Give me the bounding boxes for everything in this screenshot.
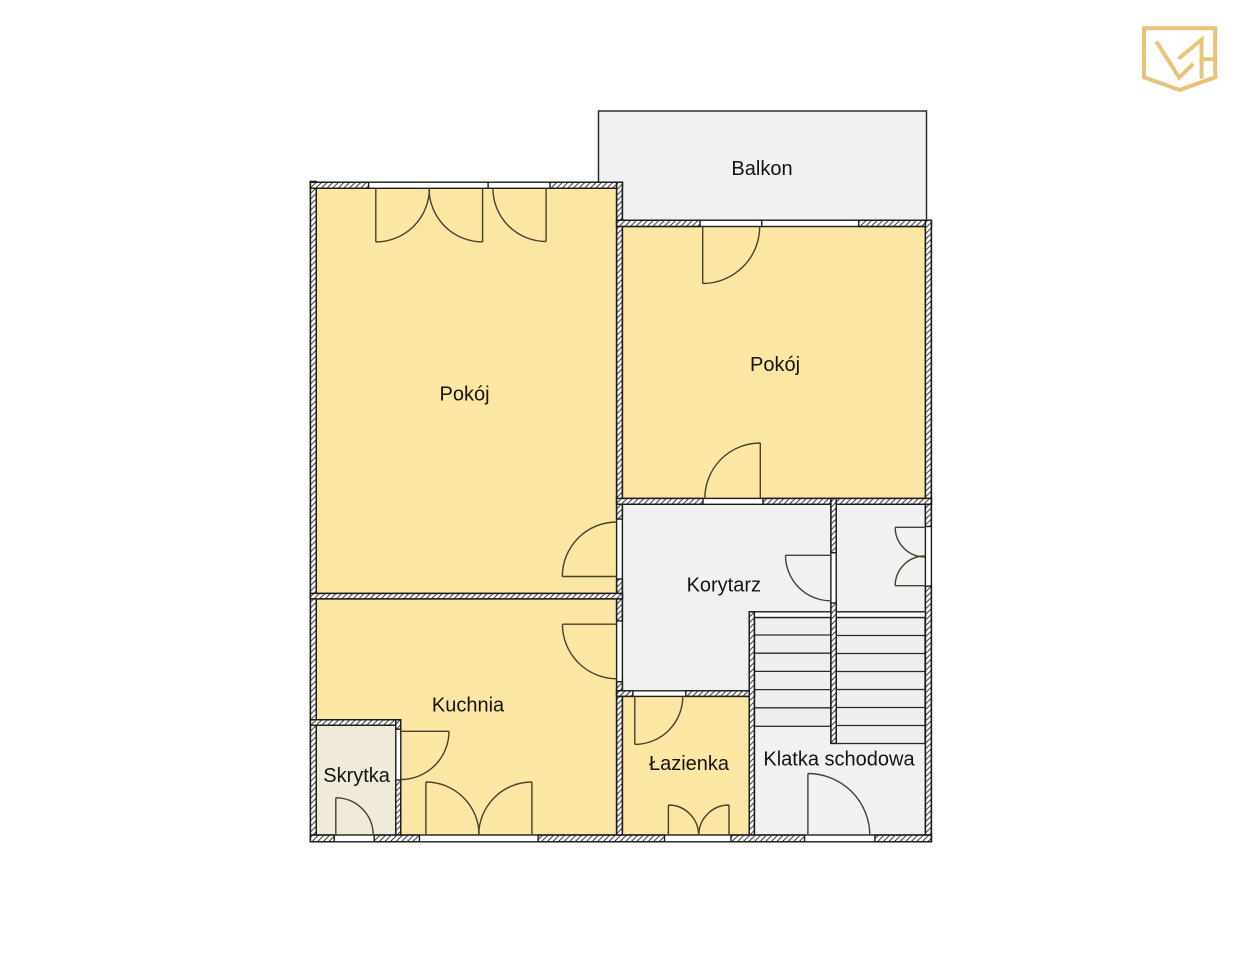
svg-text:Balkon: Balkon bbox=[731, 158, 792, 180]
svg-text:Łazienka: Łazienka bbox=[649, 753, 730, 775]
svg-text:Skrytka: Skrytka bbox=[323, 765, 391, 787]
svg-text:Klatka schodowa: Klatka schodowa bbox=[763, 749, 915, 771]
svg-text:Korytarz: Korytarz bbox=[687, 575, 761, 597]
svg-text:Kuchnia: Kuchnia bbox=[432, 695, 505, 717]
svg-text:Pokój: Pokój bbox=[439, 384, 489, 406]
svg-text:Pokój: Pokój bbox=[750, 354, 800, 376]
